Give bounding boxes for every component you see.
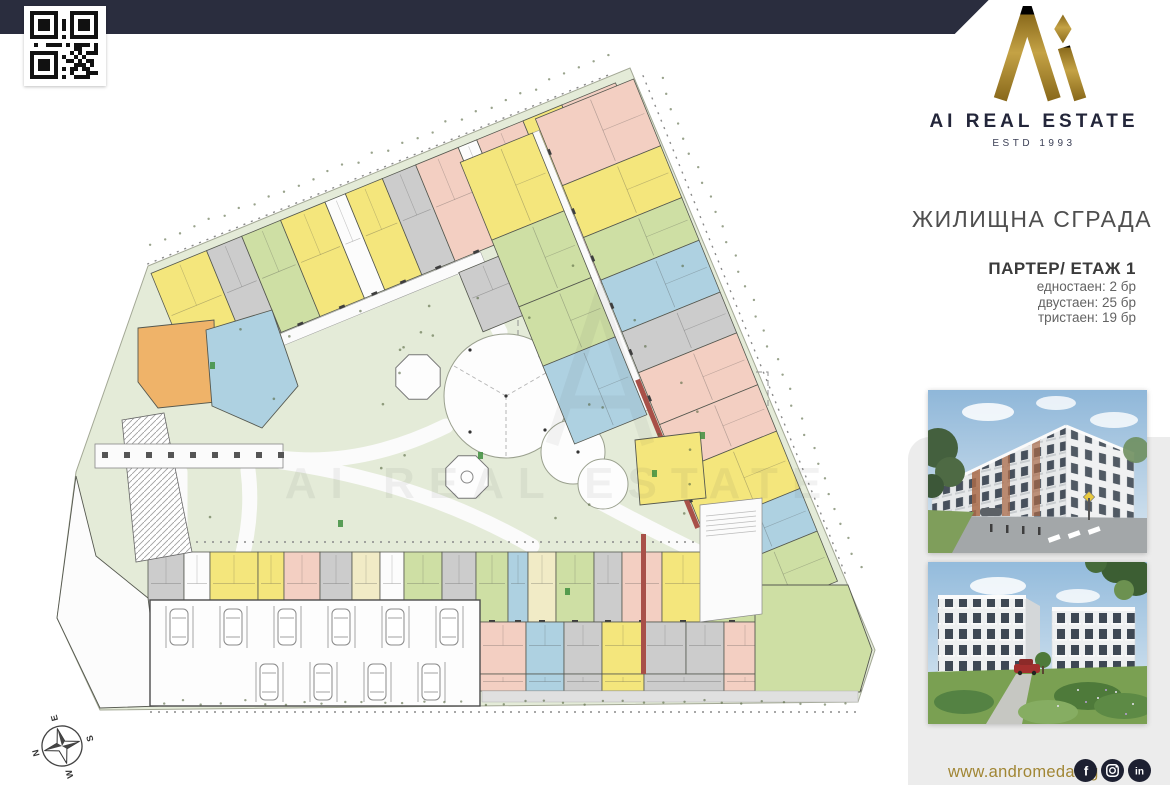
linkedin-icon[interactable]: in <box>1128 759 1151 782</box>
compass-w: W <box>63 768 75 779</box>
brand-estd: ESTD 1993 <box>905 138 1163 149</box>
stat-one-room: едностаен: 2 бр <box>988 279 1136 295</box>
svg-text:AI REAL ESTATE: AI REAL ESTATE <box>285 459 835 508</box>
compass-e: E <box>49 714 60 722</box>
floor-title: ПАРТЕР/ ЕТАЖ 1 <box>988 259 1136 279</box>
compass-s: S <box>84 734 95 742</box>
render-photo-1 <box>928 390 1147 553</box>
qr-code <box>24 6 106 86</box>
qr-code-pattern <box>30 11 100 81</box>
stat-three-room: тристаен: 19 бр <box>988 310 1136 326</box>
render-photo-2 <box>928 562 1147 724</box>
brochure-page: { "brand": { "name": "AI REAL ESTATE", "… <box>0 0 1170 785</box>
brand-logo: AI REAL ESTATE ESTD 1993 <box>905 6 1163 149</box>
stat-two-room: двустаен: 25 бр <box>988 295 1136 311</box>
svg-text:f: f <box>1084 764 1089 779</box>
facebook-icon[interactable]: f <box>1074 759 1097 782</box>
logo-mark-icon <box>981 6 1087 104</box>
svg-text:in: in <box>1135 767 1144 778</box>
instagram-icon[interactable] <box>1101 759 1124 782</box>
floor-info: ПАРТЕР/ ЕТАЖ 1 едностаен: 2 бр двустаен:… <box>988 259 1136 326</box>
compass-rose: N E S W <box>16 704 104 785</box>
brand-name: AI REAL ESTATE <box>905 111 1163 133</box>
social-icons: f in <box>1074 759 1151 782</box>
compass-n: N <box>30 749 41 758</box>
building-title: ЖИЛИЩНА СГРАДА <box>902 206 1162 233</box>
